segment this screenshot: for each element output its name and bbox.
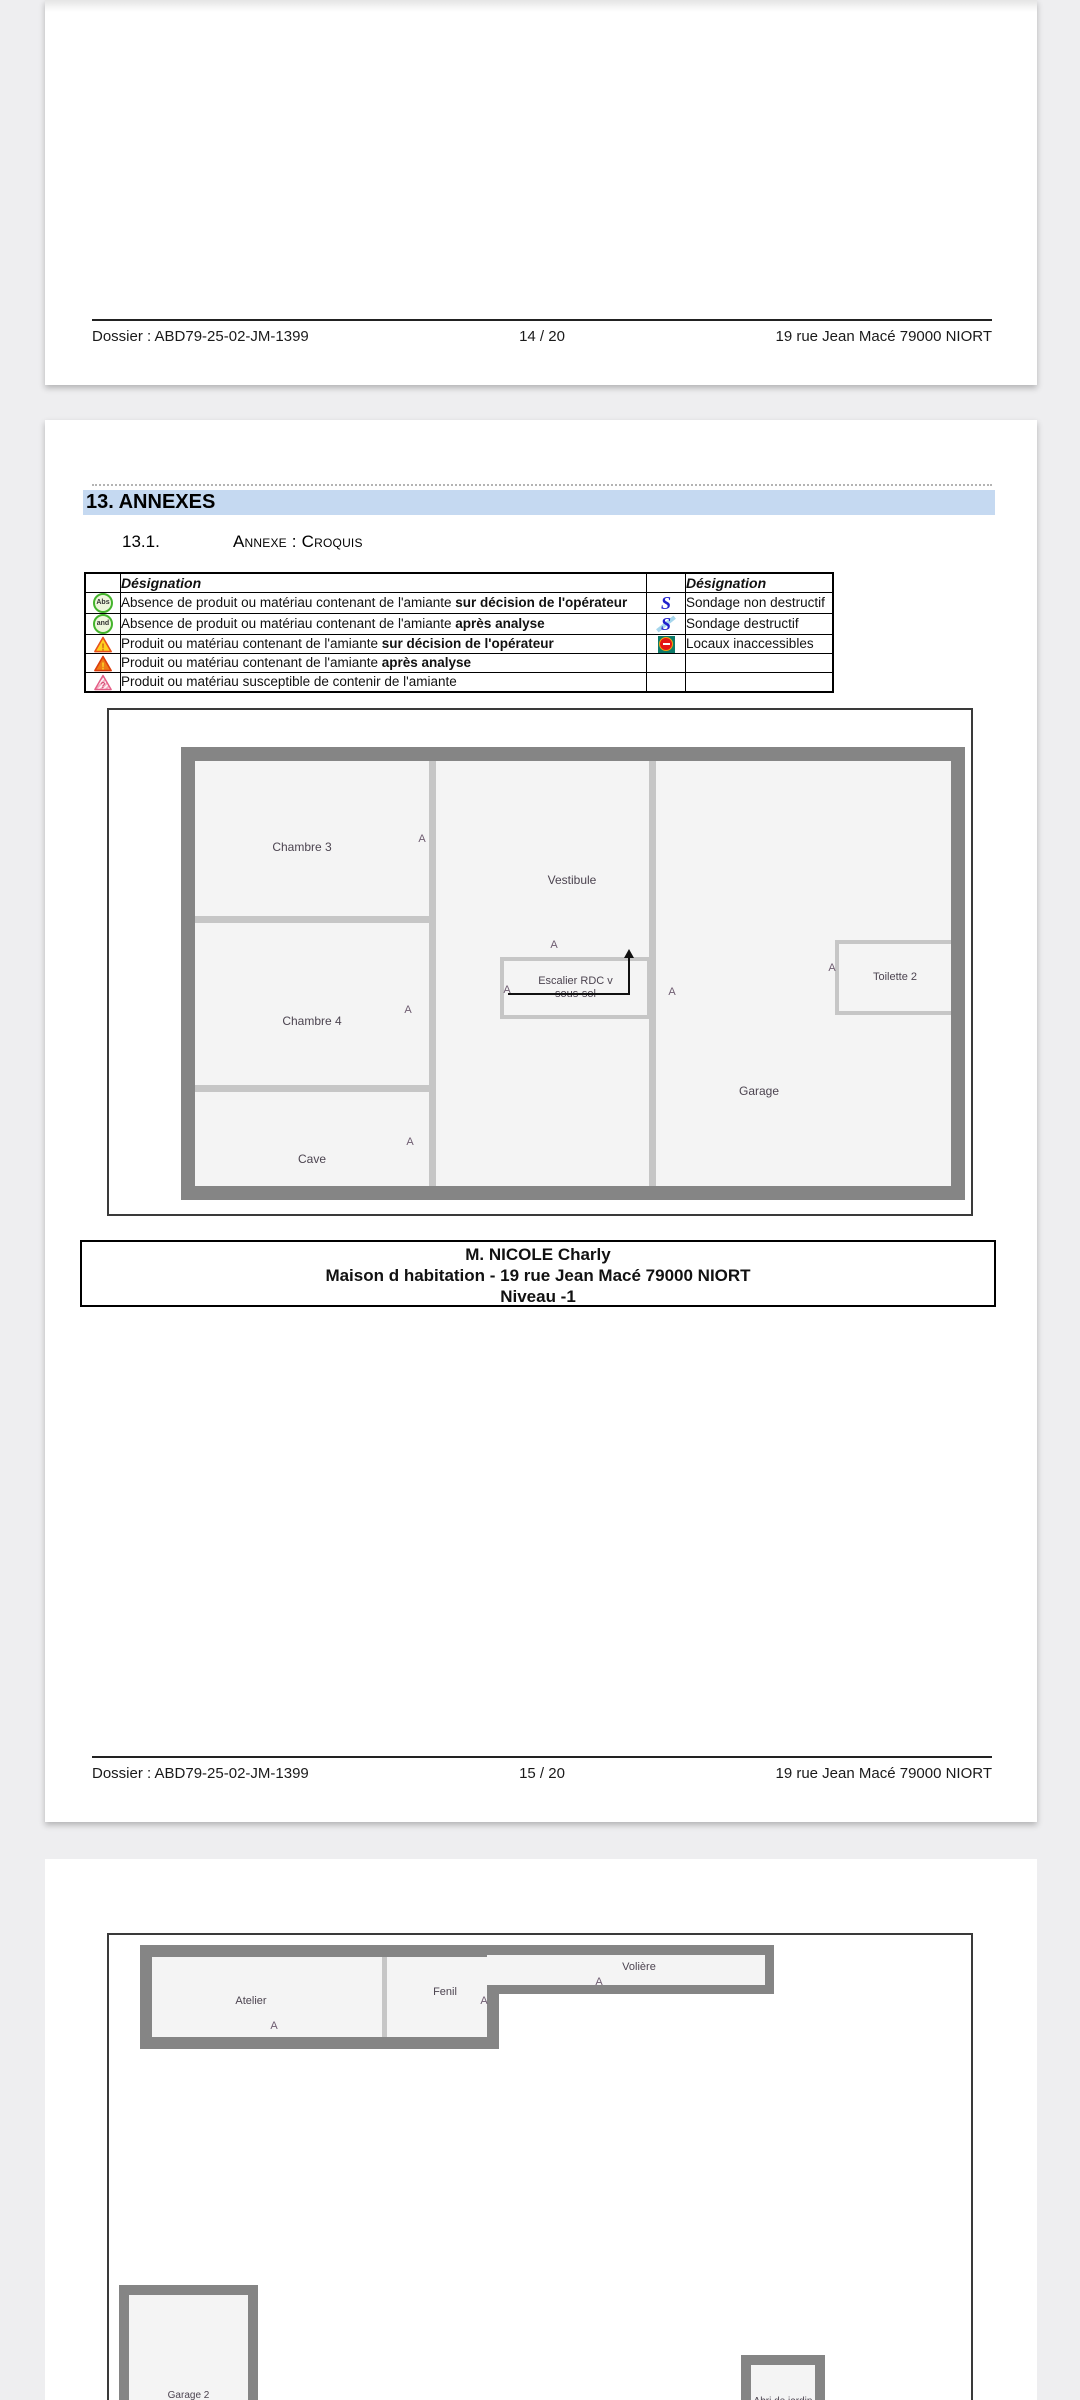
building-voliere: Volière A xyxy=(487,1945,774,1994)
section-dotted-rule xyxy=(92,484,992,486)
room-label-vestibule: Vestibule xyxy=(548,873,597,887)
legend-row: ? Produit ou matériau susceptible de con… xyxy=(85,673,833,693)
warning-triangle-outline-icon: ! xyxy=(94,636,112,653)
legend-row: ! Produit ou matériau contenant de l'ami… xyxy=(85,654,833,673)
and-green-circle-icon: and xyxy=(93,614,113,634)
legend-row: Abs Absence de produit ou matériau conte… xyxy=(85,593,833,614)
stair-arrow-vertical xyxy=(628,957,630,995)
plan-caption: M. NICOLE Charly Maison d habitation - 1… xyxy=(80,1240,996,1307)
subsection-number: 13.1. xyxy=(122,532,160,552)
room-label: Escalier RDC v xyxy=(538,975,613,988)
asbestos-marker: A xyxy=(480,1995,487,2007)
page-footer: Dossier : ABD79-25-02-JM-1399 14 / 20 19… xyxy=(92,319,992,345)
legend-header-right: Désignation xyxy=(686,575,766,591)
sondage-non-destructif-icon: S xyxy=(656,594,676,612)
room-toilette2: Toilette 2 xyxy=(835,940,951,1015)
page-footer: Dossier : ABD79-25-02-JM-1399 15 / 20 19… xyxy=(92,1756,992,1782)
legend-row: and Absence de produit ou matériau conte… xyxy=(85,614,833,635)
asbestos-marker: A xyxy=(828,962,835,974)
room-label-chambre3: Chambre 3 xyxy=(272,840,331,854)
wall-partition-atelier-fenil xyxy=(382,1957,387,2037)
legend-header-left: Désignation xyxy=(121,575,201,591)
svg-text:!: ! xyxy=(101,642,104,653)
abs-green-circle-icon: Abs xyxy=(93,593,113,613)
asbestos-marker: A xyxy=(404,1004,411,1016)
footer-address: 19 rue Jean Macé 79000 NIORT xyxy=(565,1765,992,1782)
exterior-walls: Toilette 2 Escalier RDC v sous-sol Chamb… xyxy=(181,747,965,1200)
warning-triangle-hatched-icon: ? xyxy=(94,674,112,691)
svg-text:?: ? xyxy=(101,680,106,689)
asbestos-marker: A xyxy=(503,984,510,996)
room-label-voliere: Volière xyxy=(622,1961,656,1973)
asbestos-marker: A xyxy=(418,833,425,845)
subsection-heading: 13.1. Annexe : Croquis xyxy=(45,532,1037,554)
room-label-cave: Cave xyxy=(298,1152,326,1166)
room-label-garage: Garage xyxy=(739,1084,779,1098)
pdf-page-16: Atelier A Fenil A Volière A Garage 2 Abr… xyxy=(45,1859,1037,2400)
room-label: Toilette 2 xyxy=(873,971,917,984)
building-garage2: Garage 2 xyxy=(119,2285,258,2400)
building-abri-de-jardin: Abri de jardin xyxy=(741,2355,825,2400)
pdf-scroll-area[interactable]: Dossier : ABD79-25-02-JM-1399 14 / 20 19… xyxy=(0,0,1080,2400)
footer-page-number: 15 / 20 xyxy=(519,1765,565,1782)
pdf-page-14: Dossier : ABD79-25-02-JM-1399 14 / 20 19… xyxy=(45,0,1037,385)
legend-header-row: Désignation Désignation xyxy=(85,573,833,593)
asbestos-marker: A xyxy=(406,1136,413,1148)
warning-triangle-solid-icon: ! xyxy=(94,655,112,672)
floorplan-niveau-minus1: Toilette 2 Escalier RDC v sous-sol Chamb… xyxy=(107,708,973,1216)
section-heading: 13. ANNEXES xyxy=(83,490,995,515)
asbestos-marker: A xyxy=(270,2020,277,2032)
footer-dossier: Dossier : ABD79-25-02-JM-1399 xyxy=(92,1765,519,1782)
floorplan-exterieur: Atelier A Fenil A Volière A Garage 2 Abr… xyxy=(107,1933,973,2400)
asbestos-marker: A xyxy=(595,1976,602,1988)
caption-owner: M. NICOLE Charly xyxy=(82,1244,994,1265)
room-label-garage2: Garage 2 xyxy=(168,2390,210,2400)
pdf-page-15: 13. ANNEXES 13.1. Annexe : Croquis Désig… xyxy=(45,420,1037,1822)
wall-partition-ch3-ch4 xyxy=(195,916,429,923)
caption-address: Maison d habitation - 19 rue Jean Macé 7… xyxy=(82,1265,994,1286)
asbestos-marker: A xyxy=(550,939,557,951)
wall-partition-ch4-cave xyxy=(195,1085,429,1092)
footer-address: 19 rue Jean Macé 79000 NIORT xyxy=(565,328,992,345)
subsection-title: Annexe : Croquis xyxy=(233,532,363,552)
footer-dossier: Dossier : ABD79-25-02-JM-1399 xyxy=(92,328,519,345)
sondage-destructif-icon: S xyxy=(656,615,676,633)
caption-level: Niveau -1 xyxy=(82,1286,994,1307)
wall-partition-vertical-left xyxy=(429,761,436,1186)
stair-arrow-horizontal xyxy=(508,993,630,995)
svg-text:!: ! xyxy=(101,661,104,672)
room-label-fenil: Fenil xyxy=(433,1986,457,1998)
legend-table: Désignation Désignation Abs Absence de p… xyxy=(84,572,834,693)
room-label-atelier: Atelier xyxy=(235,1995,266,2007)
room-label-abri: Abri de jardin xyxy=(754,2396,813,2400)
legend-row: ! Produit ou matériau contenant de l'ami… xyxy=(85,635,833,654)
asbestos-marker: A xyxy=(668,986,675,998)
locaux-inaccessibles-icon xyxy=(658,636,675,653)
building-atelier-fenil: Atelier A Fenil A xyxy=(140,1945,499,2049)
footer-page-number: 14 / 20 xyxy=(519,328,565,345)
room-label-chambre4: Chambre 4 xyxy=(282,1014,341,1028)
